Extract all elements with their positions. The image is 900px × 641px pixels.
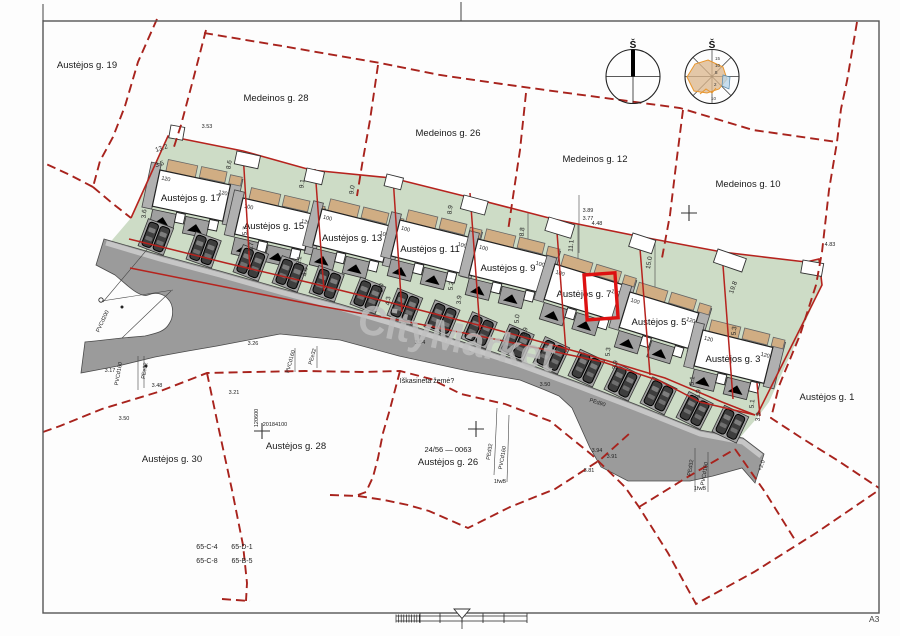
svg-text:5.3: 5.3: [605, 347, 613, 357]
svg-text:11.1: 11.1: [567, 239, 575, 252]
svg-text:5.1: 5.1: [749, 399, 757, 409]
svg-text:65-B-5: 65-B-5: [231, 558, 252, 565]
svg-text:10: 10: [715, 63, 721, 68]
svg-text:65-C-8: 65-C-8: [196, 558, 218, 565]
svg-text:3.7: 3.7: [248, 242, 256, 252]
svg-text:Š: Š: [709, 38, 716, 51]
svg-text:3.6: 3.6: [141, 209, 149, 219]
svg-text:Medeinos g. 10: Medeinos g. 10: [716, 179, 781, 190]
svg-text:Austėjos g. 19: Austėjos g. 19: [57, 60, 117, 71]
svg-text:Austėjos g. 11: Austėjos g. 11: [400, 244, 460, 255]
svg-text:A3: A3: [869, 614, 880, 624]
svg-text:3.81: 3.81: [584, 468, 595, 474]
svg-text:Austėjos g. 13: Austėjos g. 13: [322, 233, 382, 244]
svg-text:Iškasinėta žemė?: Iškasinėta žemė?: [400, 378, 455, 385]
svg-text:3.17: 3.17: [105, 368, 116, 374]
svg-text:5.1: 5.1: [689, 376, 697, 386]
svg-text:3.26: 3.26: [248, 341, 259, 347]
svg-text:9.1: 9.1: [298, 178, 306, 188]
svg-text:5.3: 5.3: [731, 326, 739, 336]
svg-text:4.83: 4.83: [825, 242, 836, 248]
svg-text:10: 10: [711, 96, 717, 101]
svg-text:9.0: 9.0: [348, 184, 356, 194]
svg-text:3.89: 3.89: [583, 208, 594, 214]
svg-text:65-C-4: 65-C-4: [196, 544, 218, 551]
svg-text:Austėjos g. 17: Austėjos g. 17: [161, 193, 221, 204]
svg-text:3.48: 3.48: [152, 383, 163, 389]
svg-text:Austėjos g. 26: Austėjos g. 26: [418, 457, 478, 468]
svg-text:1fwB: 1fwB: [694, 486, 707, 492]
svg-text:Š: Š: [630, 38, 637, 51]
svg-text:Austėjos g. 3: Austėjos g. 3: [706, 354, 761, 365]
svg-text:Austėjos g. 1: Austėjos g. 1: [800, 392, 855, 403]
svg-text:3.21: 3.21: [229, 390, 240, 396]
svg-text:Austėjos g. 15: Austėjos g. 15: [244, 221, 304, 232]
svg-text:4.6: 4.6: [302, 267, 310, 277]
svg-text:3.94: 3.94: [592, 448, 603, 454]
svg-text:Medeinos g. 12: Medeinos g. 12: [563, 154, 628, 165]
svg-text:3.9: 3.9: [612, 360, 620, 370]
svg-text:4.48: 4.48: [592, 221, 603, 227]
svg-text:1fwB: 1fwB: [494, 479, 507, 485]
svg-text:3.53: 3.53: [202, 124, 213, 130]
svg-text:15: 15: [715, 56, 721, 61]
svg-text:Medeinos g. 28: Medeinos g. 28: [244, 93, 309, 104]
svg-text:24/56 — 0063: 24/56 — 0063: [424, 445, 471, 454]
svg-text:Austėjos g. 28: Austėjos g. 28: [266, 441, 326, 452]
svg-text:Austėjos g. 5: Austėjos g. 5: [632, 317, 687, 328]
svg-text:5.1: 5.1: [296, 256, 304, 266]
svg-text:Medeinos g. 26: Medeinos g. 26: [416, 128, 481, 139]
svg-text:8.8: 8.8: [519, 227, 527, 237]
svg-text:Austėjos g. 9: Austėjos g. 9: [481, 263, 536, 274]
svg-text:20184100: 20184100: [263, 422, 287, 428]
svg-text:5.0: 5.0: [514, 314, 522, 324]
svg-text:120600: 120600: [254, 409, 260, 427]
svg-text:3.91: 3.91: [607, 454, 618, 460]
svg-text:8.9: 8.9: [446, 204, 454, 214]
svg-text:65-D-1: 65-D-1: [231, 544, 253, 551]
svg-text:Austėjos g. 30: Austėjos g. 30: [142, 454, 202, 465]
svg-text:5.7: 5.7: [242, 226, 250, 236]
svg-text:3.9: 3.9: [755, 412, 763, 422]
svg-text:5.0: 5.0: [378, 283, 386, 293]
svg-text:3.50: 3.50: [119, 416, 130, 422]
svg-text:3.50: 3.50: [540, 382, 551, 388]
svg-text:5.2: 5.2: [448, 281, 456, 291]
svg-text:3.9: 3.9: [456, 295, 464, 305]
svg-text:3.9: 3.9: [695, 389, 703, 399]
